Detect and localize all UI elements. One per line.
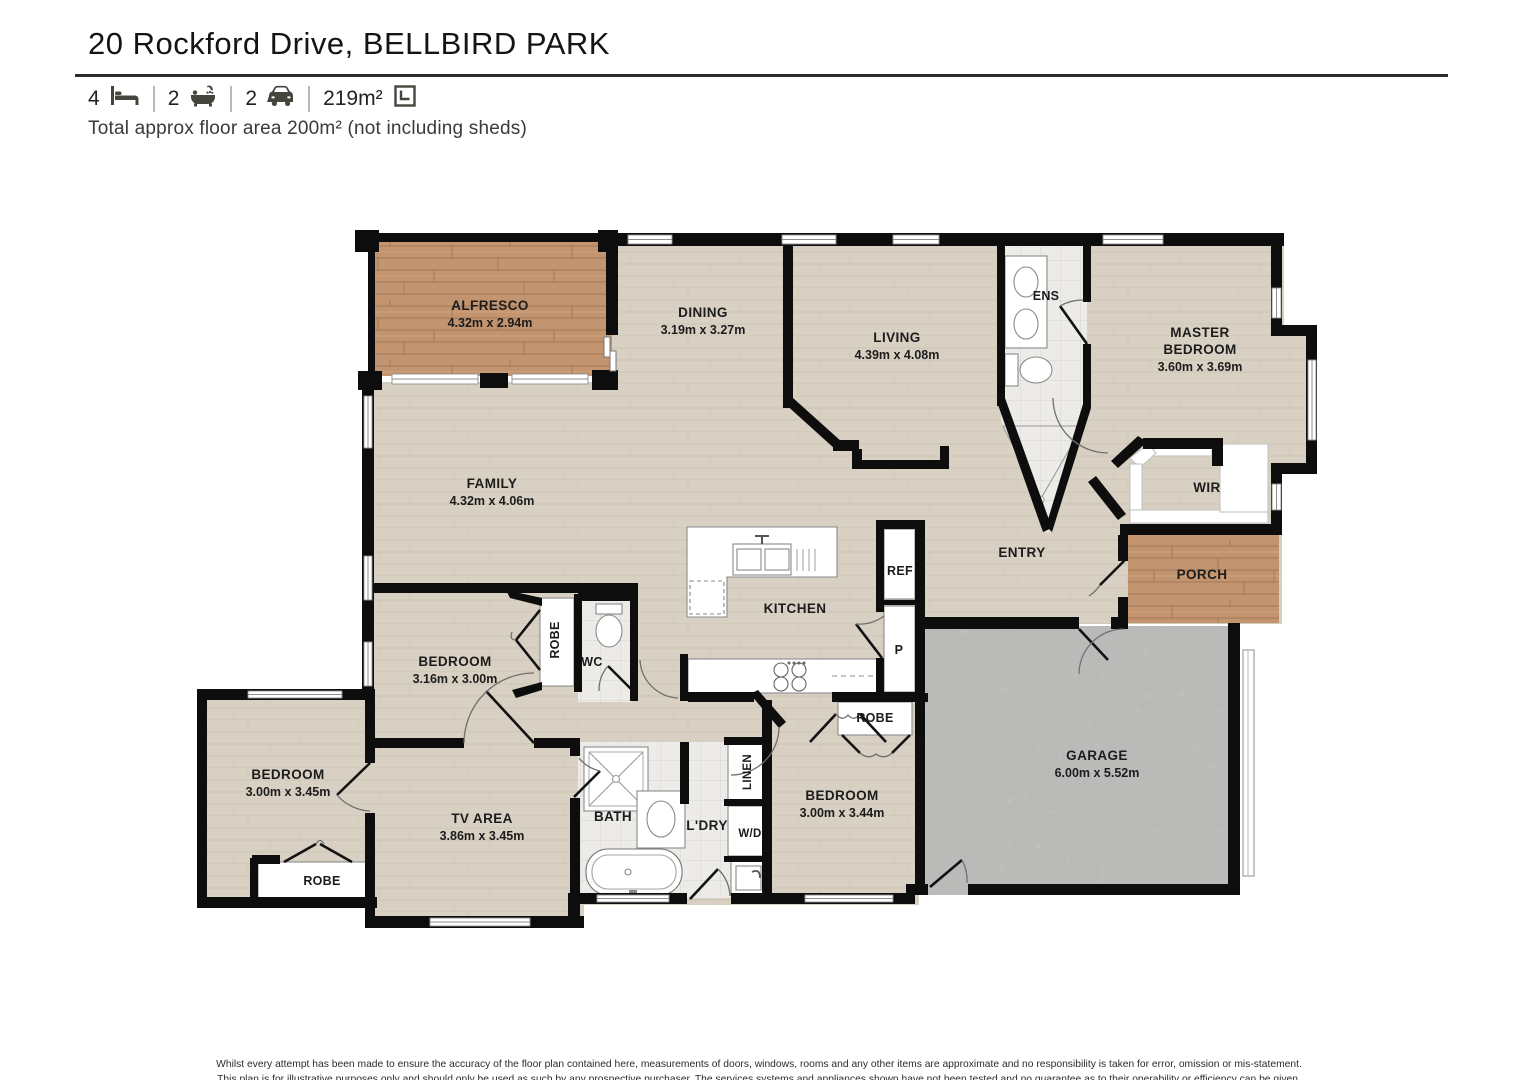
label-wd: W/D [738, 828, 761, 840]
label-alfresco: ALFRESCO [451, 298, 528, 313]
floorplan-drawing: ALFRESCO 4.32m x 2.94m DINING 3.19m x 3.… [0, 0, 1518, 1080]
wc-toilet [596, 615, 622, 647]
label-dining-dims: 3.19m x 3.27m [661, 323, 746, 337]
label-wir: WIR [1193, 480, 1220, 495]
label-alfresco-dims: 4.32m x 2.94m [448, 316, 533, 330]
label-living: LIVING [873, 330, 920, 345]
wir-shelf [1130, 464, 1142, 514]
label-master: MASTER [1170, 325, 1229, 340]
label-living-dims: 4.39m x 4.08m [855, 348, 940, 362]
label-family-dims: 4.32m x 4.06m [450, 494, 535, 508]
disclaimer: Whilst every attempt has been made to en… [110, 1057, 1408, 1080]
label-master-dims: 3.60m x 3.69m [1158, 360, 1243, 374]
label-bedroom4: BEDROOM [805, 788, 878, 803]
wir-shelf [1220, 444, 1268, 512]
label-porch: PORCH [1177, 567, 1228, 582]
label-family: FAMILY [467, 476, 518, 491]
label-garage: GARAGE [1066, 748, 1128, 763]
ens-toilet [1020, 357, 1052, 383]
label-kitchen: KITCHEN [764, 601, 827, 616]
bathtub [586, 849, 682, 895]
label-garage-dims: 6.00m x 5.52m [1055, 766, 1140, 780]
label-ens: ENS [1033, 289, 1060, 303]
label-ref: REF [887, 564, 913, 578]
label-robe-bed3: ROBE [303, 874, 340, 888]
label-master2: BEDROOM [1163, 342, 1236, 357]
label-bedroom3: BEDROOM [251, 767, 324, 782]
label-dining: DINING [678, 305, 728, 320]
label-bedroom3-dims: 3.00m x 3.45m [246, 785, 331, 799]
label-tv-area: TV AREA [451, 811, 513, 826]
label-pantry: P [895, 643, 904, 657]
disclaimer-line1: Whilst every attempt has been made to en… [110, 1057, 1408, 1072]
label-bedroom4-dims: 3.00m x 3.44m [800, 806, 885, 820]
label-bedroom2-dims: 3.16m x 3.00m [413, 672, 498, 686]
floorplan-page: 20 Rockford Drive, BELLBIRD PARK 4 2 [0, 0, 1518, 1080]
ens-toilet-tank [1005, 354, 1018, 386]
label-laundry: L'DRY [686, 818, 727, 833]
label-robe-bed4: ROBE [856, 711, 893, 725]
label-wc: WC [581, 655, 602, 669]
disclaimer-line2: This plan is for illustrative purposes o… [110, 1072, 1408, 1080]
label-bath: BATH [594, 809, 632, 824]
bath-vanity [637, 791, 685, 848]
label-tv-dims: 3.86m x 3.45m [440, 829, 525, 843]
wc-toilet-tank [596, 604, 622, 614]
label-bedroom2: BEDROOM [418, 654, 491, 669]
label-entry: ENTRY [998, 545, 1045, 560]
label-robe-bed2: ROBE [548, 621, 562, 658]
label-linen: LINEN [742, 754, 754, 790]
